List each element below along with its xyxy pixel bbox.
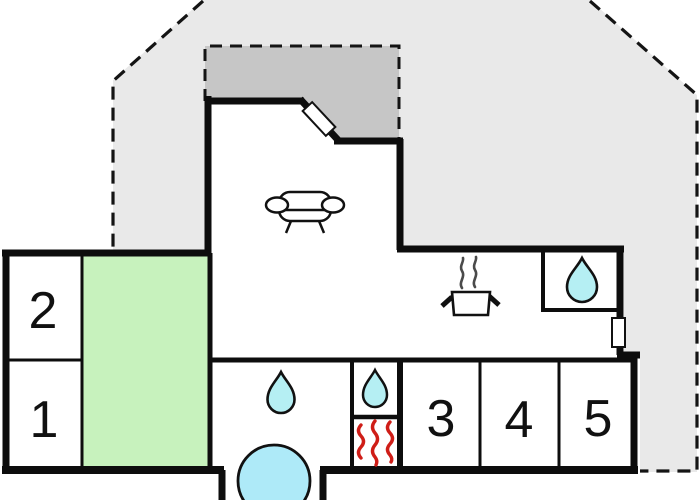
window-icon	[612, 318, 625, 347]
room-label-1: 1	[30, 391, 59, 449]
sofa-armrest-left	[266, 198, 288, 213]
room-label-5: 5	[584, 390, 613, 448]
room-label-3: 3	[427, 390, 456, 448]
sofa-armrest-right	[322, 198, 344, 213]
floor-plan-canvas: 2 1 3 4 5	[0, 0, 700, 500]
green-room	[82, 252, 210, 470]
pot-body	[452, 292, 490, 315]
room-label-2: 2	[29, 282, 58, 340]
floor-plan: 2 1 3 4 5	[0, 0, 700, 500]
room-label-4: 4	[505, 391, 534, 449]
